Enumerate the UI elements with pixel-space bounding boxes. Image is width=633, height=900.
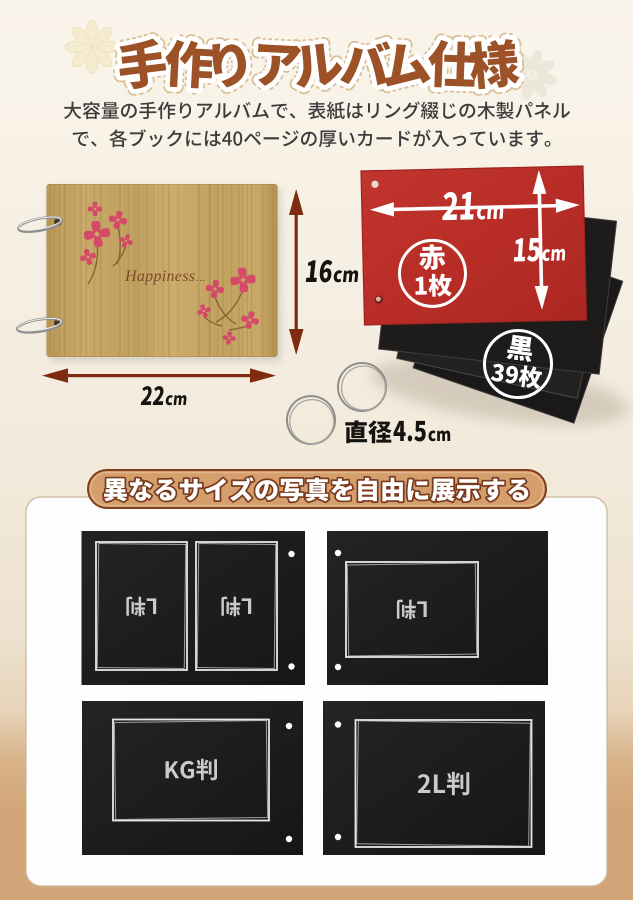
svg-text:Happiness...: Happiness... [124,268,205,285]
